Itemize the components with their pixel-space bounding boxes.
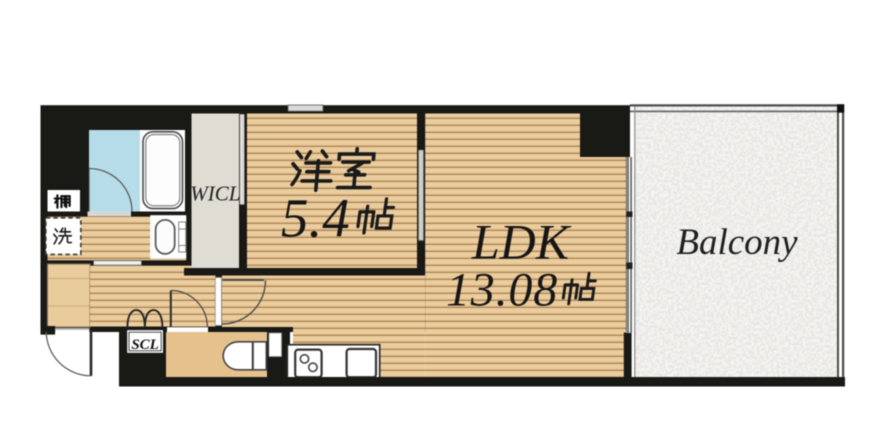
- svg-text:5.4: 5.4: [281, 188, 350, 249]
- svg-text:LDK: LDK: [471, 214, 572, 270]
- svg-text:Balcony: Balcony: [676, 222, 798, 263]
- svg-text:SCL: SCL: [131, 337, 159, 353]
- svg-text:13.08: 13.08: [446, 264, 558, 317]
- svg-text:WICL: WICL: [190, 182, 240, 206]
